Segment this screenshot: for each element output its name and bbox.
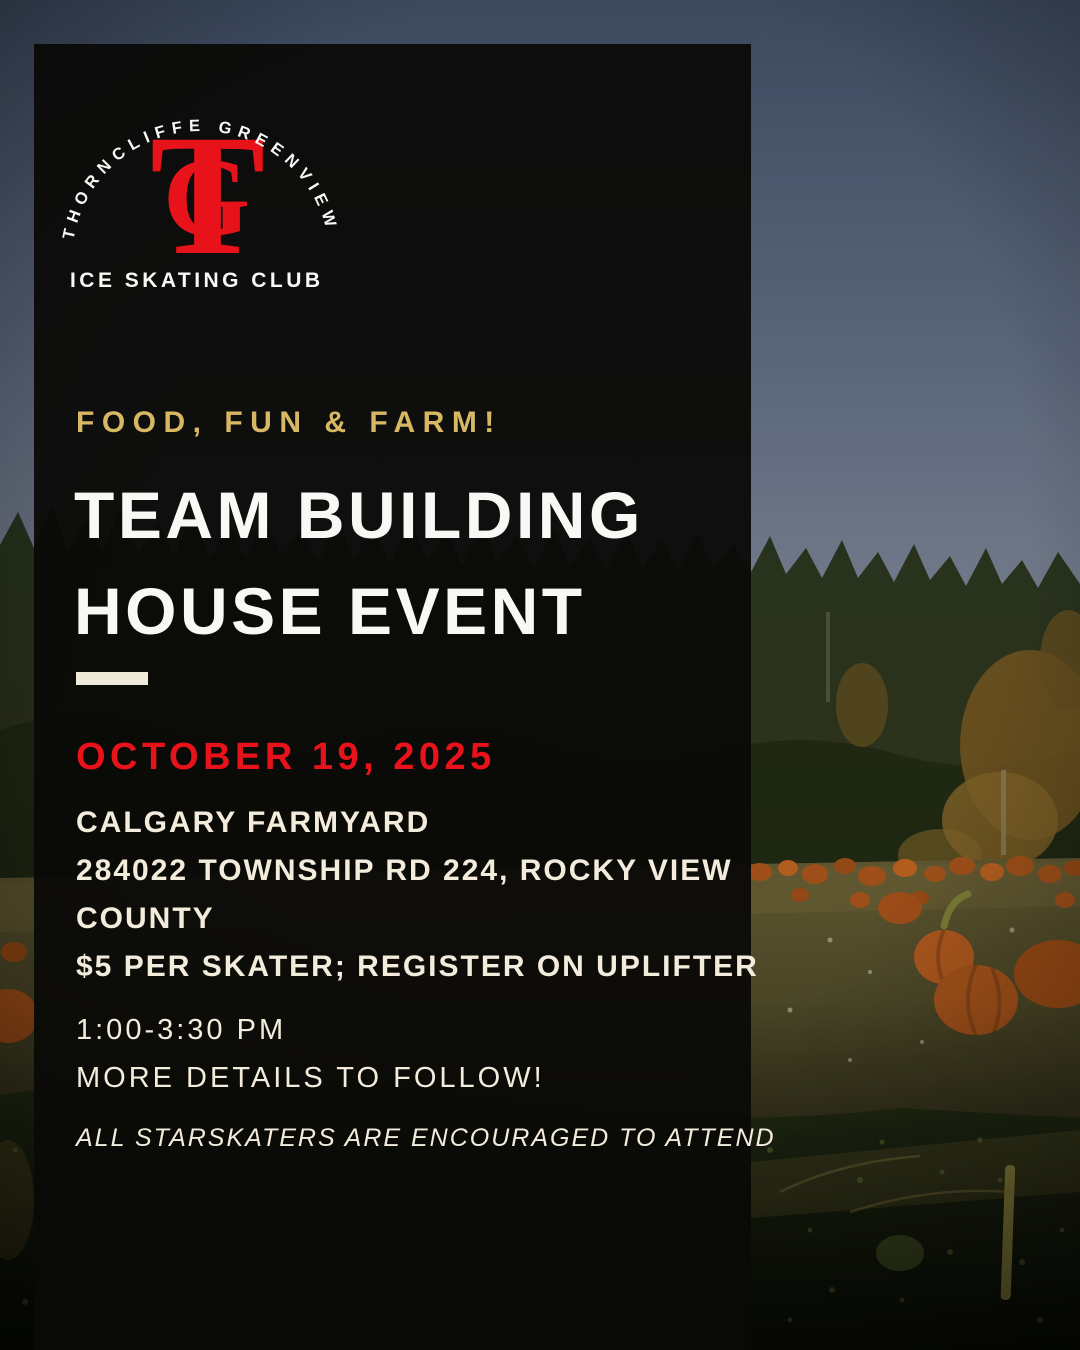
venue-name: CALGARY FARMYARD xyxy=(76,799,759,847)
price-registration: $5 PER SKATER; REGISTER ON UPLIFTER xyxy=(76,943,759,991)
divider-rule xyxy=(76,672,148,685)
event-title: TEAM BUILDING HOUSE EVENT xyxy=(74,467,644,659)
footnote: ALL STARSKATERS ARE ENCOURAGED TO ATTEND xyxy=(76,1124,776,1153)
schedule-note: MORE DETAILS TO FOLLOW! xyxy=(76,1054,545,1102)
event-date: OCTOBER 19, 2025 xyxy=(76,738,496,776)
logo-subtitle: ICE SKATING CLUB xyxy=(70,269,323,292)
content-panel: G T THORNCLIFFE GREENVIEW ICE SKATING CL… xyxy=(34,44,751,1350)
event-poster: G T THORNCLIFFE GREENVIEW ICE SKATING CL… xyxy=(0,0,1080,1350)
club-logo: G T THORNCLIFFE GREENVIEW ICE SKATING CL… xyxy=(50,74,370,334)
venue-address-line2: COUNTY xyxy=(76,895,759,943)
venue-address-line1: 284022 TOWNSHIP RD 224, ROCKY VIEW xyxy=(76,847,759,895)
event-title-line2: HOUSE EVENT xyxy=(74,563,644,659)
event-schedule: 1:00-3:30 PM MORE DETAILS TO FOLLOW! xyxy=(76,1006,545,1102)
event-title-line1: TEAM BUILDING xyxy=(74,467,644,563)
event-details: CALGARY FARMYARD 284022 TOWNSHIP RD 224,… xyxy=(76,799,759,991)
eyebrow-tagline: FOOD, FUN & FARM! xyxy=(76,406,502,440)
event-time: 1:00-3:30 PM xyxy=(76,1006,545,1054)
